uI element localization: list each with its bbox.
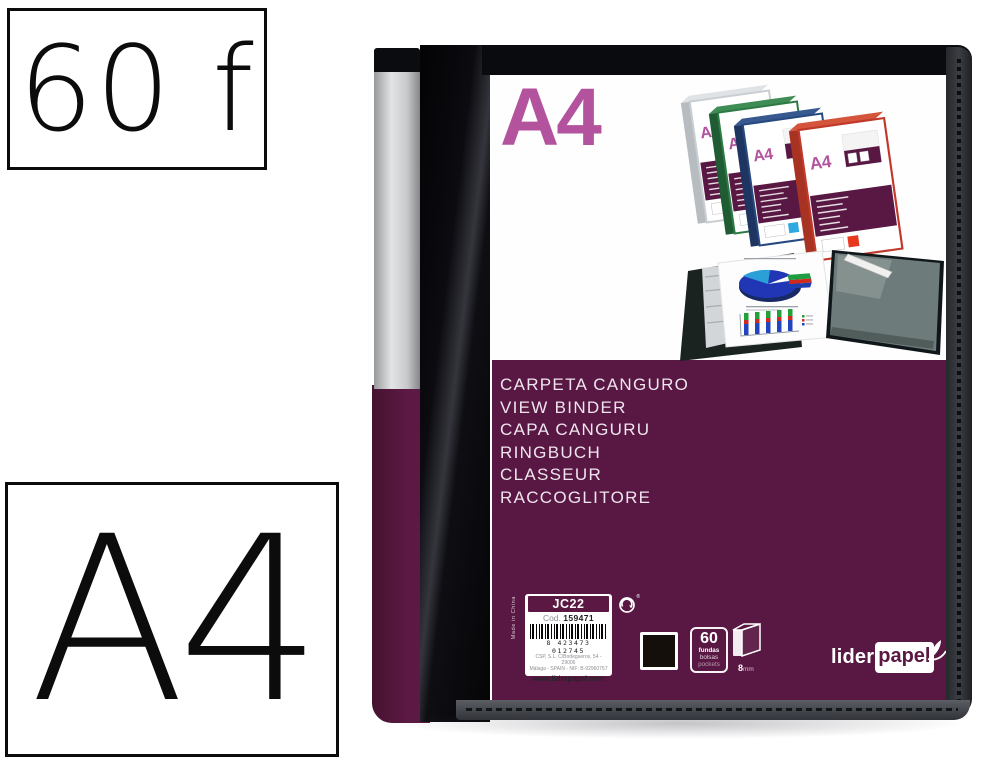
lang-de: RINGBUCH bbox=[500, 442, 689, 465]
spine-size-unit: mm bbox=[743, 666, 754, 673]
stitch-pattern-horizontal bbox=[466, 708, 958, 711]
pockets-count: 60 bbox=[692, 631, 726, 647]
cover-size-label: A4 bbox=[500, 73, 599, 163]
binder-right-edge-stitching bbox=[946, 47, 972, 715]
cod-label: Cod. bbox=[543, 613, 561, 623]
cover-product-collage: A4 bbox=[642, 75, 954, 370]
lang-fr: CLASSEUR bbox=[500, 464, 689, 487]
format-badge: A4 bbox=[5, 482, 339, 757]
website-text: www.liderpapel.com bbox=[528, 674, 609, 683]
binder-front-cover: A4 CARPETA CANGURO VIEW BINDER CAPA CANG… bbox=[490, 45, 972, 720]
barcode bbox=[530, 624, 607, 639]
binder-spine bbox=[420, 45, 490, 722]
color-swatch-black bbox=[640, 632, 678, 670]
brand-lider-text: lider bbox=[831, 646, 874, 669]
brand-papel-text: papel bbox=[875, 642, 933, 673]
thumb-size-label: A4 bbox=[752, 146, 774, 166]
cover-insert-sheet: A4 CARPETA CANGURO VIEW BINDER CAPA CANG… bbox=[492, 75, 946, 702]
recycle-icon bbox=[618, 596, 636, 614]
spine-width-spec: 8mm bbox=[732, 623, 768, 675]
pockets-word-fundas: fundas bbox=[692, 647, 726, 654]
address-line-2: Málaga - SPAIN - NIF: B-92960757 bbox=[528, 667, 609, 673]
cod-line: Cod. 159471 bbox=[528, 613, 609, 623]
product-photo-stage: 60 f A4 A4 CARPETA CANGURO VIEW BINDER C… bbox=[0, 0, 1000, 762]
binder-thumbnail-red: A4 bbox=[788, 112, 902, 262]
lang-pt: CAPA CANGURU bbox=[500, 419, 689, 442]
made-in-text: Made in China bbox=[511, 596, 517, 639]
view-binder: A4 CARPETA CANGURO VIEW BINDER CAPA CANG… bbox=[372, 45, 972, 725]
cod-value: 159471 bbox=[563, 613, 594, 623]
pockets-word-bolsas: bolsas bbox=[692, 654, 726, 661]
format-text: A4 bbox=[29, 487, 314, 753]
sheet-count-text: 60 f bbox=[18, 20, 255, 158]
lang-en: VIEW BINDER bbox=[500, 397, 689, 420]
liderpapel-logo: lider papel bbox=[831, 642, 947, 673]
lang-es: CARPETA CANGURO bbox=[500, 374, 689, 397]
sheet-count-badge: 60 f bbox=[7, 8, 267, 170]
product-name-languages: CARPETA CANGURO VIEW BINDER CAPA CANGURU… bbox=[500, 374, 689, 510]
drop-shadow bbox=[392, 713, 967, 739]
model-code: JC22 bbox=[528, 596, 609, 612]
thumb-size-label: A4 bbox=[808, 151, 832, 174]
pockets-word-pockets: pockets bbox=[692, 661, 726, 668]
product-label: JC22 Cod. 159471 8 423473 012745 CSP, S.… bbox=[525, 594, 612, 676]
green-dot-recycle-icon: ® bbox=[618, 596, 640, 614]
barcode-digits: 8 423473 012745 bbox=[528, 639, 609, 655]
spine-label-cap bbox=[374, 48, 420, 72]
spine-label-holder bbox=[374, 51, 420, 389]
spine-3d-icon bbox=[732, 623, 762, 657]
binder-top-edge bbox=[482, 45, 972, 75]
leaf-icon bbox=[927, 638, 947, 662]
pockets-count-badge: 60 fundas bolsas pockets bbox=[690, 627, 728, 673]
stitch-pattern-vertical bbox=[957, 59, 961, 703]
spine-size-text: 8mm bbox=[738, 663, 768, 673]
open-binder-photo bbox=[680, 250, 944, 361]
insert-purple-band: CARPETA CANGURO VIEW BINDER CAPA CANGURU… bbox=[492, 360, 946, 702]
registered-mark: ® bbox=[636, 594, 640, 600]
lang-it: RACCOGLITORE bbox=[500, 487, 689, 510]
